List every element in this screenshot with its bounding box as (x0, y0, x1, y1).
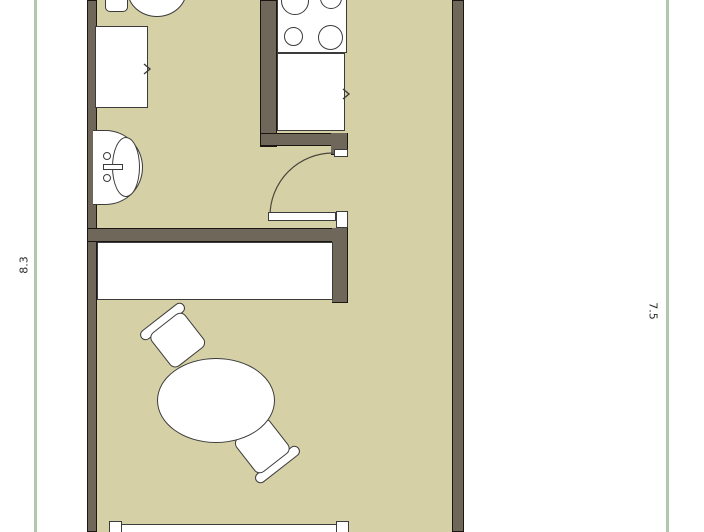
toilet-tank (105, 0, 128, 12)
lot-line-right (666, 0, 669, 532)
bathroom-cabinet (95, 26, 148, 108)
dining-table (157, 358, 275, 443)
divider-wall (87, 228, 348, 242)
stove (277, 0, 347, 53)
burner-bottom-right (318, 25, 343, 50)
floor-plan-canvas: 8.3 7.5 (0, 0, 704, 532)
kitchen-wall-vertical (260, 0, 277, 147)
sink-tap-cold (103, 174, 111, 182)
dimension-label-left: 8.3 (18, 256, 31, 274)
cabinet-handle-icon (143, 62, 153, 76)
entry-door-leaf (268, 212, 336, 221)
burner-bottom-left (284, 27, 303, 46)
closet (97, 242, 333, 300)
bed-frame (121, 524, 337, 532)
door-swing-arc (264, 148, 340, 222)
burner-top-right (320, 0, 342, 9)
dimension-label-right: 7.5 (647, 302, 660, 320)
counter-handle-icon (342, 87, 352, 101)
wall-right (452, 0, 464, 532)
lot-line-left (34, 0, 37, 532)
sink-tap-hot (103, 152, 111, 160)
kitchen-counter (277, 53, 345, 131)
divider-wall-return (332, 228, 348, 303)
burner-top-left (281, 0, 309, 15)
bed-post-left (109, 521, 122, 532)
bed-post-right (336, 521, 349, 532)
sink-faucet (103, 164, 123, 170)
